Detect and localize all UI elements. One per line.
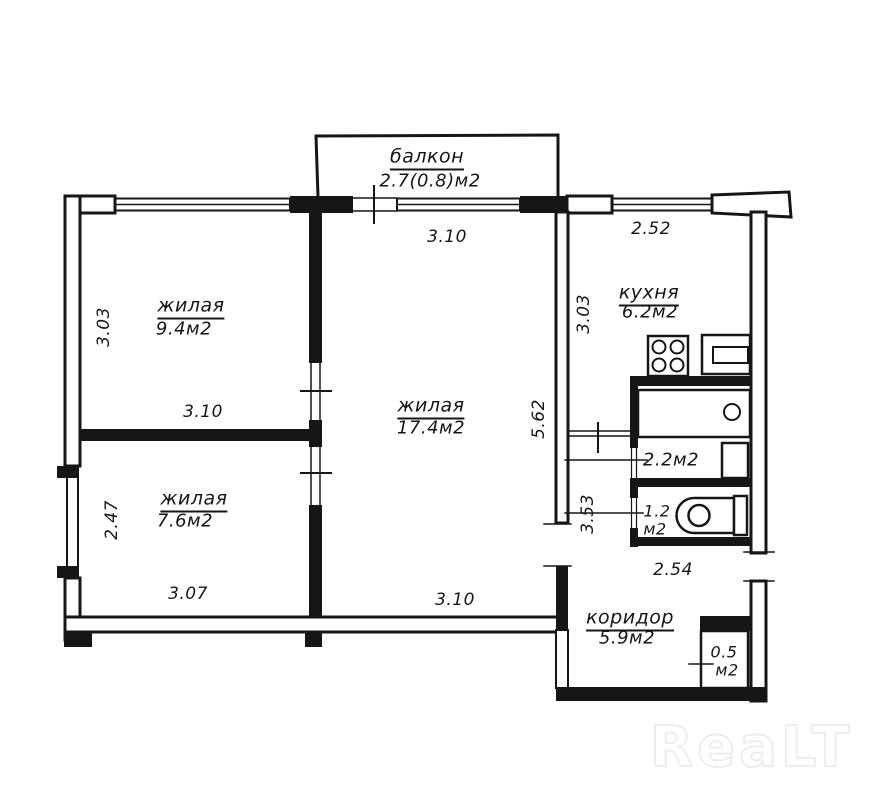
door-top-left-room (301, 363, 331, 420)
closet-area-unit: м2 (715, 661, 738, 680)
left-wall (57, 196, 80, 640)
dim-kitchen-height: 3.03 (574, 294, 594, 334)
room-top-left-name: жилая (157, 295, 224, 320)
window-center-room (397, 199, 520, 211)
entrance-door (744, 552, 774, 581)
dim-bottom-left-height: 2.47 (102, 500, 122, 540)
window-kitchen (612, 199, 712, 211)
dim-corridor-width: 2.54 (653, 560, 693, 580)
toilet-icon (677, 496, 748, 535)
door-bottom-left-room (301, 447, 331, 505)
wall-kitchen-bottom (632, 376, 752, 386)
toilet-area-value: 1.2 (644, 502, 671, 521)
top-wall (66, 186, 791, 223)
kitchen-sink-icon (702, 335, 750, 374)
dim-kitchen-top-width: 2.52 (631, 219, 671, 239)
floor-plan-page: ReaLT балкон 2.7(0.8)м2 3.10 2.52 жилая … (0, 0, 875, 807)
window-top-left-room (115, 199, 290, 211)
wall-left-center (301, 212, 331, 617)
toilet-area-unit: м2 (643, 520, 666, 539)
window-bottom-left-room (67, 478, 78, 566)
dim-center-bottom-width: 3.10 (435, 590, 475, 610)
washbasin-icon (722, 443, 748, 478)
corridor-area: 5.9м2 (599, 628, 655, 649)
bathroom-area: 2.2м2 (643, 450, 699, 471)
dim-hallway-height: 3.53 (578, 494, 598, 534)
room-bottom-left-area: 7.6м2 (157, 511, 213, 532)
bathtub-icon (638, 390, 750, 437)
wall-left-rooms-divider (80, 429, 309, 441)
balcony-door (353, 186, 397, 223)
stove-icon (648, 336, 688, 376)
room-center-area: 17.4м2 (397, 418, 465, 439)
room-center-name: жилая (397, 395, 464, 420)
balcony-area: 2.7(0.8)м2 (379, 171, 480, 192)
room-top-left-area: 9.4м2 (156, 319, 212, 340)
dim-center-top-width: 3.10 (427, 227, 467, 247)
dim-top-left-width: 3.10 (183, 402, 223, 422)
door-center-room (544, 524, 571, 566)
balcony-name: балкон (390, 146, 464, 171)
door-bathroom (632, 448, 637, 478)
dim-top-left-height: 3.03 (94, 307, 114, 347)
hallway-partition (568, 423, 632, 452)
dim-center-height: 5.62 (529, 399, 549, 439)
dim-bottom-left-width: 3.07 (168, 584, 208, 604)
closet-area-value: 0.5 (711, 643, 738, 662)
room-bottom-left-name: жилая (160, 488, 227, 513)
watermark-logo: ReaLT (650, 715, 854, 780)
kitchen-area: 6.2м2 (622, 302, 678, 323)
